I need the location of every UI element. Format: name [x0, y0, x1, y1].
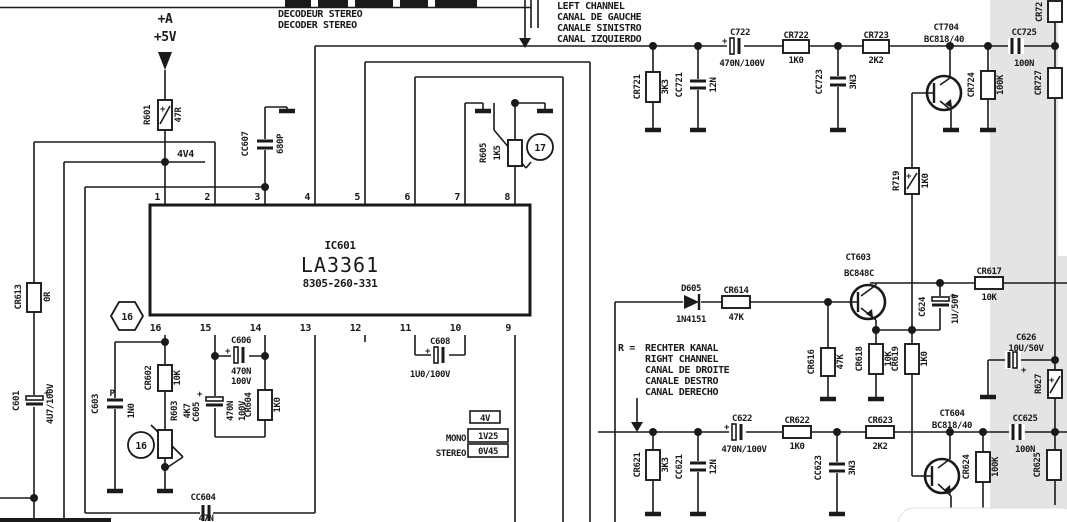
svg-text:CR618: CR618	[855, 346, 865, 371]
transistor-ct704: CT704 BC818/40	[924, 23, 964, 110]
svg-text:CANAL DERECHO: CANAL DERECHO	[645, 387, 718, 398]
svg-text:R603: R603	[170, 401, 180, 421]
diode-d605: D605 1N4151	[676, 284, 706, 325]
mono-voltage: 1V25	[478, 432, 498, 442]
resistor-cr614: CR614 47K	[722, 286, 750, 323]
svg-text:CANAL IZQUIERDO: CANAL IZQUIERDO	[557, 34, 642, 45]
svg-text:BC818/40: BC818/40	[924, 35, 964, 45]
svg-text:CR724: CR724	[967, 71, 977, 97]
pin-8: 8	[504, 192, 510, 203]
svg-text:DECODER STEREO: DECODER STEREO	[278, 20, 357, 31]
svg-text:3K3: 3K3	[661, 457, 671, 472]
resistor-r627: + R627	[1034, 370, 1062, 398]
svg-text:CR721: CR721	[633, 74, 643, 99]
resistor-cr618: CR618 10K	[855, 344, 894, 374]
callout-circle-16: 16	[128, 432, 154, 458]
svg-text:R627: R627	[1034, 374, 1044, 394]
measurement-block: 4V MONO 1V25 STEREO 0V45	[436, 411, 508, 459]
svg-text:CC607: CC607	[241, 131, 251, 156]
left-channel-note: LEFT CHANNEL CANAL DE GAUCHE CANALE SINI…	[557, 1, 642, 45]
svg-text:C608: C608	[430, 337, 450, 347]
svg-text:R601: R601	[143, 105, 153, 125]
capacitor-c608: + C608 1U0/100V	[410, 337, 451, 380]
svg-text:CR722: CR722	[783, 31, 808, 41]
svg-text:CANALE DESTRO: CANALE DESTRO	[645, 376, 718, 387]
callout-circle-17: 17	[527, 134, 553, 160]
svg-text:100N: 100N	[1015, 445, 1035, 455]
svg-text:2K2: 2K2	[872, 442, 887, 452]
svg-text:47K: 47K	[728, 313, 744, 323]
svg-text:0R: 0R	[43, 291, 53, 302]
svg-text:C624: C624	[918, 296, 928, 317]
trimmer-r605: R605 1K5	[479, 140, 522, 166]
resistor-cr602: CR602 10K	[144, 365, 183, 391]
pin-12: 12	[350, 323, 362, 334]
svg-text:CR727: CR727	[1034, 70, 1044, 95]
pin-16: 16	[150, 323, 162, 334]
cutoff-title-remnant	[285, 0, 477, 7]
svg-text:470N/100V: 470N/100V	[721, 445, 767, 455]
svg-text:DECODEUR STEREO: DECODEUR STEREO	[278, 9, 363, 20]
svg-text:+A: +A	[158, 12, 173, 27]
svg-text:CR623: CR623	[867, 416, 892, 426]
pin-1: 1	[154, 192, 160, 203]
svg-text:16: 16	[121, 312, 133, 323]
capacitor-c603: C603 P 1N0	[91, 389, 137, 419]
svg-text:CC604: CC604	[190, 493, 216, 503]
svg-text:CR616: CR616	[807, 349, 817, 374]
svg-text:CC723: CC723	[815, 69, 825, 94]
right-channel-arrow-icon	[631, 422, 643, 432]
resistor-cr623: CR623 2K2	[866, 416, 894, 452]
transistor-ct603: CT603 BC848C	[844, 253, 885, 319]
pin-2: 2	[204, 192, 210, 203]
svg-text:C605: C605	[192, 402, 202, 422]
svg-text:1K0: 1K0	[273, 397, 283, 412]
ic-code: 8305-260-331	[303, 277, 378, 290]
svg-text:1U0/100V: 1U0/100V	[410, 370, 451, 380]
svg-text:CR723: CR723	[863, 31, 888, 41]
capacitor-c722: + C722 470N/100V	[719, 28, 765, 69]
capacitor-cc721: CC721 12N	[675, 72, 719, 97]
ic-pin-numbers-top: 1 2 3 4 5 6 7 8	[154, 192, 510, 203]
resistor-r719: + R719 1K0	[892, 168, 931, 194]
svg-text:1N4151: 1N4151	[676, 315, 706, 325]
svg-text:CR624: CR624	[962, 453, 972, 479]
svg-text:R =: R =	[618, 343, 635, 354]
svg-text:RECHTER KANAL: RECHTER KANAL	[645, 343, 718, 354]
svg-text:R605: R605	[479, 143, 489, 163]
callout-hex-16: 16	[111, 302, 143, 330]
svg-text:RIGHT CHANNEL: RIGHT CHANNEL	[645, 354, 718, 365]
ic-pin-numbers-bottom: 16 15 14 13 12 11 10 9	[150, 323, 512, 334]
svg-text:CR602: CR602	[144, 365, 154, 390]
resistor-r601: + R601 47R	[143, 100, 184, 130]
svg-text:2K2: 2K2	[868, 56, 883, 66]
svg-text:+5V: +5V	[154, 30, 177, 45]
svg-text:CT603: CT603	[845, 253, 870, 263]
svg-text:CC725: CC725	[1011, 28, 1036, 38]
pin-4: 4	[304, 192, 310, 203]
pin-5: 5	[354, 192, 360, 203]
ic-ref: IC601	[324, 239, 356, 252]
svg-text:12N: 12N	[709, 77, 719, 92]
svg-text:CC721: CC721	[675, 72, 685, 97]
svg-text:470N: 470N	[231, 367, 251, 377]
svg-text:CR622: CR622	[784, 416, 809, 426]
svg-text:100V: 100V	[231, 377, 252, 387]
svg-text:1U/50V: 1U/50V	[951, 293, 961, 324]
svg-text:10U/50V: 10U/50V	[1008, 344, 1044, 354]
resistor-cr721: CR721 3K3	[633, 72, 671, 102]
svg-text:LEFT CHANNEL: LEFT CHANNEL	[557, 1, 625, 12]
capacitor-cc621: CC621 12N	[675, 454, 719, 479]
node-4v4: 4V4	[177, 149, 194, 160]
resistor-cr619: CR619 1K0	[891, 344, 930, 374]
svg-text:100K: 100K	[996, 74, 1006, 95]
svg-text:1K0: 1K0	[921, 173, 931, 188]
svg-text:CANAL DE GAUCHE: CANAL DE GAUCHE	[557, 12, 642, 23]
svg-text:CC625: CC625	[1012, 414, 1037, 424]
resistor-cr604: CR604 1K0	[244, 390, 283, 420]
svg-text:3N3: 3N3	[848, 460, 858, 475]
stereo-voltage: 0V45	[478, 447, 498, 457]
svg-text:100K: 100K	[991, 456, 1001, 477]
pin-7: 7	[454, 192, 460, 203]
svg-text:470N: 470N	[226, 401, 236, 421]
stereo-decoder-schematic: IC601 LA3361 8305-260-331 1 2 3 4 5 6 7 …	[0, 0, 1067, 522]
resistor-cr72x: CR72	[1035, 1, 1062, 22]
svg-text:C603: C603	[91, 394, 101, 414]
svg-text:C606: C606	[231, 336, 251, 346]
svg-text:1N0: 1N0	[127, 403, 137, 418]
svg-text:1K0: 1K0	[789, 442, 804, 452]
mono-label: MONO	[446, 434, 467, 444]
svg-text:10K: 10K	[173, 369, 183, 385]
supply-label: +A +5V 4V4	[154, 12, 194, 160]
capacitor-c606: + C606 470N 100V	[225, 336, 252, 387]
supply-arrow-icon	[158, 52, 172, 70]
pin-11: 11	[400, 323, 412, 334]
pin-14: 14	[250, 323, 262, 334]
svg-text:1K5: 1K5	[493, 145, 503, 160]
svg-text:100V: 100V	[238, 400, 248, 421]
svg-text:CR617: CR617	[976, 267, 1001, 277]
right-channel-note: R = RECHTER KANAL RIGHT CHANNEL CANAL DE…	[618, 343, 730, 398]
ic-part: LA3361	[301, 253, 379, 277]
capacitor-c605: + C605 470N 100V	[192, 390, 248, 422]
resistor-cr625: CR625	[1033, 450, 1061, 480]
resistor-cr722: CR722 1K0	[783, 31, 809, 66]
svg-text:1K0: 1K0	[920, 351, 930, 366]
svg-text:CANALE SINISTRO: CANALE SINISTRO	[557, 23, 642, 34]
svg-text:1K0: 1K0	[788, 56, 803, 66]
svg-text:C626: C626	[1016, 333, 1036, 343]
svg-text:CT604: CT604	[939, 409, 965, 419]
resistor-cr622: CR622 1K0	[783, 416, 811, 452]
svg-text:10K: 10K	[981, 293, 997, 303]
shaded-region-gap	[1058, 0, 1067, 256]
capacitor-cc623: CC623 3N3	[814, 455, 858, 480]
pin-13: 13	[300, 323, 312, 334]
stereo-label: STEREO	[436, 449, 467, 459]
pin-9: 9	[505, 323, 511, 334]
svg-text:BC848C: BC848C	[844, 269, 874, 279]
svg-text:CR619: CR619	[891, 346, 901, 371]
svg-text:CC621: CC621	[675, 454, 685, 479]
svg-text:CR625: CR625	[1033, 452, 1043, 477]
svg-text:4U7/100V: 4U7/100V	[46, 383, 56, 424]
resistor-cr727: CR727	[1034, 68, 1062, 98]
pin-3: 3	[254, 192, 260, 203]
schematic-page: IC601 LA3361 8305-260-331 1 2 3 4 5 6 7 …	[0, 0, 1067, 522]
idle-voltage: 4V	[480, 414, 491, 424]
svg-text:3N3: 3N3	[849, 74, 859, 89]
svg-text:CR613: CR613	[14, 284, 24, 309]
resistor-cr723: CR723 2K2	[863, 31, 889, 66]
pin-10: 10	[450, 323, 462, 334]
svg-text:17: 17	[534, 143, 546, 154]
svg-text:47N: 47N	[198, 514, 213, 522]
svg-text:D605: D605	[681, 284, 701, 294]
svg-text:3K3: 3K3	[661, 79, 671, 94]
svg-text:C601: C601	[12, 391, 22, 411]
svg-text:CR621: CR621	[633, 452, 643, 477]
capacitor-cc604: CC604 47N	[190, 493, 216, 522]
svg-text:C622: C622	[732, 414, 752, 424]
capacitor-cc607: CC607 680P	[241, 131, 286, 156]
pin-6: 6	[404, 192, 410, 203]
svg-text:680P: 680P	[276, 133, 286, 154]
svg-text:47R: 47R	[174, 106, 184, 122]
capacitor-cc723: CC723 3N3	[815, 69, 859, 94]
svg-text:CT704: CT704	[933, 23, 959, 33]
svg-text:CR72: CR72	[1035, 2, 1045, 22]
svg-text:470N/100V: 470N/100V	[719, 59, 765, 69]
capacitor-c622: + C622 470N/100V	[721, 414, 767, 455]
pin-15: 15	[200, 323, 212, 334]
svg-text:R719: R719	[892, 171, 902, 191]
svg-text:CC623: CC623	[814, 455, 824, 480]
resistor-cr616: CR616 47K	[807, 348, 846, 376]
svg-text:47K: 47K	[836, 353, 846, 369]
svg-text:16: 16	[135, 441, 147, 452]
svg-text:100N: 100N	[1014, 59, 1034, 69]
page-edge-mark	[0, 518, 111, 522]
resistor-cr613: CR613 0R	[14, 283, 53, 312]
svg-text:12N: 12N	[709, 459, 719, 474]
svg-text:+: +	[197, 390, 203, 400]
overlay-blob	[898, 508, 1067, 522]
svg-text:C722: C722	[730, 28, 750, 38]
svg-text:CR614: CR614	[723, 286, 749, 296]
svg-text:CANAL DE DROITE: CANAL DE DROITE	[645, 365, 730, 376]
resistor-cr621: CR621 3K3	[633, 450, 671, 480]
resistor-cr724: CR724 100K	[967, 71, 1006, 99]
title-block: DECODEUR STEREO DECODER STEREO	[278, 9, 363, 31]
ic601: IC601 LA3361 8305-260-331	[150, 205, 530, 315]
